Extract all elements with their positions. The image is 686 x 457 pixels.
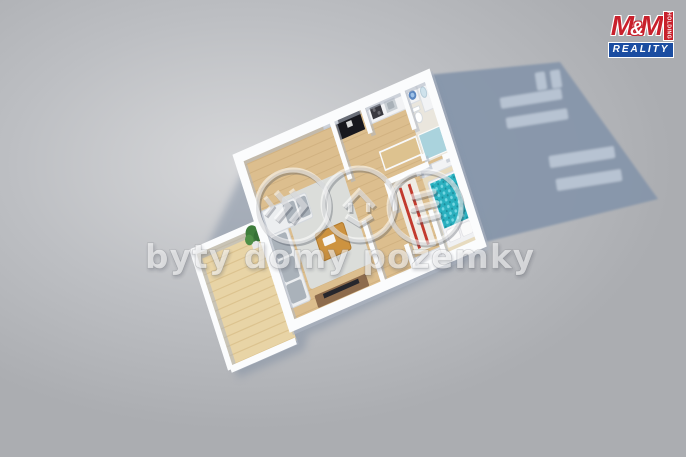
logo-reality-bar: REALITY (608, 42, 674, 58)
logo-m1: M (611, 10, 631, 41)
floorplan-render-page: { "scene": { "description": "3D isometri… (0, 0, 686, 457)
logo-m2: M (640, 10, 660, 41)
logo-ampersand: & (630, 19, 641, 40)
floorplan-canvas: byty domy pozemky (0, 0, 686, 457)
watermark-text: byty domy pozemky (145, 237, 535, 276)
logo-holding-strip: HOLDING (663, 11, 674, 41)
logo-brand: M&M (608, 11, 663, 41)
agency-logo: M&M HOLDING REALITY (608, 11, 674, 58)
logo-top-row: M&M HOLDING (608, 11, 674, 41)
